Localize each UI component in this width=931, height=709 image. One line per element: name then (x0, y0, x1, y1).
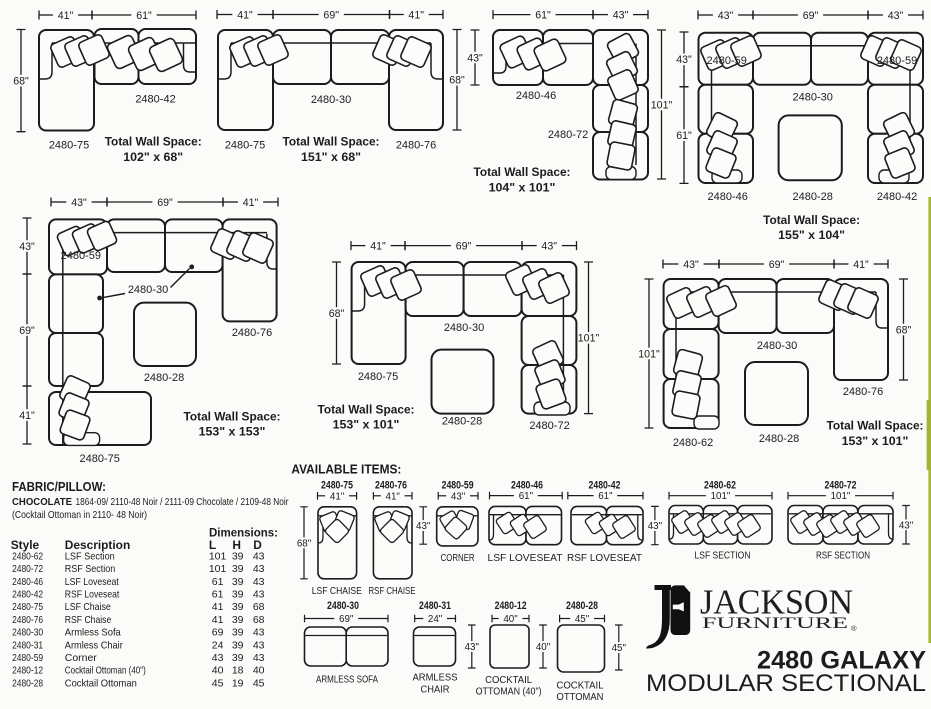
svg-text:RSF Loveseat: RSF Loveseat (65, 589, 120, 601)
svg-text:2480-59: 2480-59 (61, 250, 101, 262)
svg-text:Dimensions:: Dimensions: (209, 526, 278, 540)
svg-text:2480-30: 2480-30 (444, 322, 484, 334)
svg-text:68": 68" (329, 308, 345, 320)
svg-text:43": 43" (451, 491, 466, 502)
svg-text:RSF Section: RSF Section (65, 563, 116, 575)
svg-text:Armless Sofa: Armless Sofa (65, 627, 121, 639)
svg-text:2480-28: 2480-28 (442, 416, 482, 428)
svg-text:2480-28: 2480-28 (566, 600, 598, 612)
svg-text:2480-30: 2480-30 (793, 92, 833, 104)
svg-text:45": 45" (612, 643, 627, 654)
svg-text:41": 41" (370, 240, 386, 252)
svg-text:19: 19 (232, 677, 244, 689)
svg-text:2480-62: 2480-62 (704, 480, 736, 492)
svg-text:FABRIC/PILLOW:: FABRIC/PILLOW: (12, 480, 106, 494)
svg-text:69: 69 (212, 627, 224, 639)
svg-text:2480-46: 2480-46 (511, 480, 543, 492)
svg-text:2480-76: 2480-76 (12, 614, 43, 626)
svg-text:2480-62: 2480-62 (12, 550, 43, 562)
svg-text:39: 39 (232, 614, 244, 626)
svg-text:®: ® (851, 624, 857, 633)
svg-text:2480-76: 2480-76 (843, 386, 883, 398)
svg-text:40": 40" (503, 614, 518, 625)
svg-text:2480-30: 2480-30 (12, 627, 43, 639)
svg-text:Cocktail Ottoman: Cocktail Ottoman (65, 677, 137, 689)
svg-text:69": 69" (456, 240, 472, 252)
svg-text:68": 68" (896, 324, 912, 336)
svg-text:2480-12: 2480-12 (12, 665, 43, 677)
svg-text:Armless Chair: Armless Chair (65, 639, 123, 651)
svg-text:69": 69" (769, 259, 785, 271)
svg-text:39: 39 (232, 550, 244, 562)
svg-text:2480-59: 2480-59 (442, 480, 474, 492)
svg-text:41": 41" (237, 9, 253, 21)
svg-text:43": 43" (683, 259, 699, 271)
svg-text:41": 41" (330, 491, 345, 502)
svg-text:AVAILABLE ITEMS:: AVAILABLE ITEMS: (291, 462, 401, 477)
svg-text:43": 43" (648, 521, 663, 532)
svg-text:OTTOMAN (40"): OTTOMAN (40") (476, 687, 542, 698)
svg-text:153" x 101": 153" x 101" (842, 434, 909, 448)
svg-text:2480-76: 2480-76 (375, 480, 407, 492)
svg-text:2480-12: 2480-12 (495, 600, 527, 612)
svg-text:Corner: Corner (65, 652, 97, 664)
svg-text:2480-72: 2480-72 (529, 420, 569, 432)
svg-text:Total Wall Space:: Total Wall Space: (318, 402, 415, 416)
svg-text:2480-42: 2480-42 (135, 94, 175, 106)
svg-text:43": 43" (613, 9, 629, 21)
svg-text:MODULAR SECTIONAL: MODULAR SECTIONAL (646, 670, 926, 697)
svg-text:69": 69" (339, 614, 354, 625)
svg-text:153" x 101": 153" x 101" (333, 418, 400, 432)
svg-text:Total Wall Space:: Total Wall Space: (827, 419, 924, 433)
svg-text:LSF Chaise: LSF Chaise (65, 601, 111, 613)
svg-text:102" x 68": 102" x 68" (123, 150, 183, 164)
svg-text:2480-30: 2480-30 (128, 284, 168, 296)
svg-text:151" x 68": 151" x 68" (301, 150, 361, 164)
svg-text:LSF CHAISE: LSF CHAISE (312, 586, 362, 597)
svg-text:40: 40 (212, 665, 224, 677)
svg-text:69": 69" (803, 10, 819, 22)
svg-text:2480-76: 2480-76 (396, 140, 436, 152)
svg-text:39: 39 (232, 601, 244, 613)
svg-text:2480-72: 2480-72 (548, 129, 588, 141)
svg-text:43: 43 (253, 563, 265, 575)
svg-text:43: 43 (253, 639, 265, 651)
svg-text:2480-76: 2480-76 (232, 327, 272, 339)
svg-text:2480-28: 2480-28 (12, 677, 43, 689)
svg-text:61": 61" (535, 9, 551, 21)
svg-text:43: 43 (253, 627, 265, 639)
svg-text:2480-30: 2480-30 (327, 600, 359, 612)
svg-text:43": 43" (71, 197, 87, 209)
svg-text:40": 40" (536, 642, 551, 653)
svg-text:101: 101 (209, 550, 227, 562)
svg-text:RSF SECTION: RSF SECTION (816, 551, 870, 562)
svg-text:43": 43" (718, 10, 734, 22)
svg-text:2480-75: 2480-75 (358, 371, 398, 383)
svg-text:CORNER: CORNER (441, 553, 475, 564)
svg-text:43": 43" (541, 240, 557, 252)
svg-text:69": 69" (323, 9, 339, 21)
svg-text:2480-72: 2480-72 (825, 480, 857, 492)
svg-text:39: 39 (232, 652, 244, 664)
svg-text:2480-59: 2480-59 (707, 55, 747, 67)
svg-text:LSF Loveseat: LSF Loveseat (65, 576, 119, 588)
svg-text:39: 39 (232, 627, 244, 639)
svg-text:43": 43" (465, 642, 480, 653)
svg-text:61: 61 (212, 576, 224, 588)
svg-text:68": 68" (297, 538, 312, 549)
svg-text:2480-75: 2480-75 (49, 140, 89, 152)
svg-text:68": 68" (449, 75, 465, 87)
svg-text:24: 24 (212, 639, 224, 651)
svg-text:101": 101" (711, 491, 731, 502)
svg-text:40: 40 (253, 665, 265, 677)
svg-text:39: 39 (232, 589, 244, 601)
svg-text:FURNITURE: FURNITURE (702, 615, 848, 632)
svg-text:Total Wall Space:: Total Wall Space: (184, 409, 281, 423)
svg-text:101": 101" (578, 333, 600, 345)
svg-text:2480-28: 2480-28 (759, 433, 799, 445)
svg-text:2480-30: 2480-30 (757, 340, 797, 352)
svg-text:153" x 153": 153" x 153" (199, 425, 266, 439)
svg-text:68: 68 (253, 601, 265, 613)
svg-text:2480-28: 2480-28 (793, 191, 833, 203)
svg-text:18: 18 (232, 665, 244, 677)
svg-text:43": 43" (416, 521, 431, 532)
svg-text:43": 43" (676, 54, 692, 66)
svg-text:2480-42: 2480-42 (12, 589, 43, 601)
svg-text:61": 61" (598, 491, 613, 502)
svg-text:39: 39 (232, 563, 244, 575)
svg-text:69": 69" (19, 325, 35, 337)
svg-text:2480-72: 2480-72 (12, 563, 43, 575)
svg-text:Total Wall Space:: Total Wall Space: (763, 213, 860, 227)
svg-text:43: 43 (253, 589, 265, 601)
svg-text:2480-46: 2480-46 (708, 191, 748, 203)
svg-text:43: 43 (253, 550, 265, 562)
svg-text:2480-42: 2480-42 (877, 191, 917, 203)
svg-text:41": 41" (243, 197, 259, 209)
svg-text:1864-09/ 2110-48 Noir / 2111-0: 1864-09/ 2110-48 Noir / 2111-09 Chocolat… (76, 497, 289, 508)
svg-text:45": 45" (575, 614, 590, 625)
svg-text:Total Wall Space:: Total Wall Space: (474, 165, 571, 179)
svg-text:69": 69" (157, 197, 173, 209)
svg-text:2480-46: 2480-46 (12, 576, 43, 588)
svg-text:24": 24" (428, 614, 443, 625)
svg-text:2480-31: 2480-31 (419, 600, 451, 612)
svg-text:RSF CHAISE: RSF CHAISE (369, 586, 416, 597)
svg-text:104" x 101": 104" x 101" (489, 180, 556, 194)
svg-text:2480-42: 2480-42 (589, 480, 621, 492)
svg-text:ARMLESS: ARMLESS (413, 673, 458, 684)
svg-text:39: 39 (232, 639, 244, 651)
svg-text:ARMLESS SOFA: ARMLESS SOFA (316, 675, 378, 686)
svg-text:2480-75: 2480-75 (225, 140, 265, 152)
svg-text:43": 43" (888, 10, 904, 22)
svg-text:(Cocktail Ottoman in 2110- 48: (Cocktail Ottoman in 2110- 48 Noir) (12, 510, 147, 521)
svg-text:101: 101 (209, 563, 227, 575)
svg-text:LSF SECTION: LSF SECTION (695, 551, 751, 562)
svg-text:Cocktail Ottoman (40"): Cocktail Ottoman (40") (65, 665, 146, 677)
svg-text:41": 41" (408, 9, 424, 21)
svg-text:Total Wall Space:: Total Wall Space: (283, 135, 380, 149)
svg-text:43": 43" (899, 520, 914, 531)
svg-text:61": 61" (676, 130, 692, 142)
svg-text:45: 45 (253, 677, 265, 689)
svg-text:CHOCOLATE: CHOCOLATE (12, 497, 72, 508)
svg-text:43": 43" (467, 52, 483, 64)
svg-text:101": 101" (831, 491, 851, 502)
svg-text:2480-31: 2480-31 (12, 639, 43, 651)
svg-text:43: 43 (253, 652, 265, 664)
svg-text:101": 101" (638, 348, 660, 360)
svg-text:43: 43 (212, 652, 224, 664)
svg-text:OTTOMAN: OTTOMAN (557, 692, 604, 703)
svg-text:61": 61" (519, 491, 534, 502)
svg-text:39: 39 (232, 576, 244, 588)
svg-text:2480-75: 2480-75 (12, 601, 43, 613)
svg-text:41: 41 (212, 614, 224, 626)
svg-text:41": 41" (19, 410, 35, 422)
svg-text:155" x 104": 155" x 104" (778, 228, 845, 242)
svg-text:101": 101" (651, 99, 673, 111)
svg-text:2480-59: 2480-59 (877, 55, 917, 67)
svg-text:Total Wall Space:: Total Wall Space: (105, 135, 202, 149)
svg-text:RSF Chaise: RSF Chaise (65, 614, 112, 626)
svg-text:68": 68" (13, 75, 29, 87)
svg-text:45: 45 (212, 677, 224, 689)
svg-text:2480-46: 2480-46 (516, 90, 556, 102)
svg-text:COCKTAIL: COCKTAIL (485, 675, 532, 686)
svg-text:41: 41 (212, 601, 224, 613)
svg-text:LSF LOVESEAT: LSF LOVESEAT (488, 553, 564, 564)
svg-text:2480-75: 2480-75 (321, 480, 353, 492)
svg-text:CHAIR: CHAIR (421, 685, 450, 696)
svg-text:68: 68 (253, 614, 265, 626)
svg-text:COCKTAIL: COCKTAIL (557, 681, 604, 692)
svg-text:LSF Section: LSF Section (65, 550, 115, 562)
svg-text:RSF LOVESEAT: RSF LOVESEAT (567, 553, 643, 564)
svg-text:41": 41" (853, 259, 869, 271)
svg-text:2480-59: 2480-59 (12, 652, 43, 664)
svg-text:41": 41" (58, 10, 74, 22)
svg-text:2480-30: 2480-30 (311, 94, 351, 106)
svg-text:2480-75: 2480-75 (80, 453, 120, 465)
svg-text:2480-62: 2480-62 (673, 437, 713, 449)
svg-text:61": 61" (136, 10, 152, 22)
svg-text:2480-28: 2480-28 (144, 372, 184, 384)
svg-text:41": 41" (386, 491, 401, 502)
svg-text:43": 43" (19, 241, 35, 253)
svg-text:43: 43 (253, 576, 265, 588)
svg-text:61: 61 (212, 589, 224, 601)
